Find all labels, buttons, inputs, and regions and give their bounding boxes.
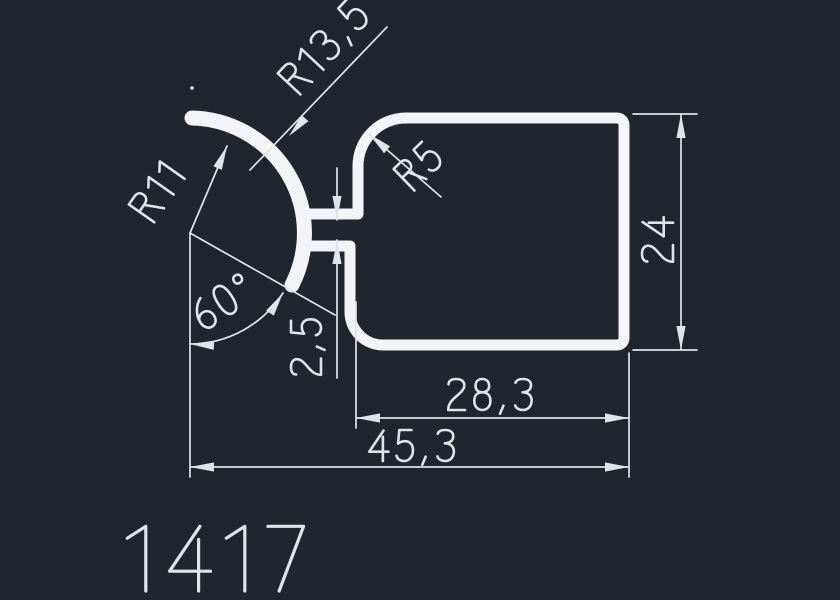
label-inner-width [448, 379, 531, 414]
cad-drawing-canvas: 1417 [0, 0, 840, 600]
profile-outline [192, 118, 624, 345]
label-corner-radius [394, 141, 444, 191]
center-mark-dot [190, 86, 194, 90]
cad-drawing: 1417 [0, 0, 840, 600]
part-number [127, 526, 303, 591]
label-height [642, 217, 673, 262]
label-slot-gap [291, 319, 325, 375]
profile-body [302, 118, 624, 345]
hook-arc-band [192, 118, 304, 285]
label-angle [189, 273, 256, 331]
label-inner-radius [129, 161, 185, 222]
label-outer-radius [278, 0, 373, 97]
angle-arc [190, 293, 283, 344]
label-total-width [369, 430, 454, 465]
